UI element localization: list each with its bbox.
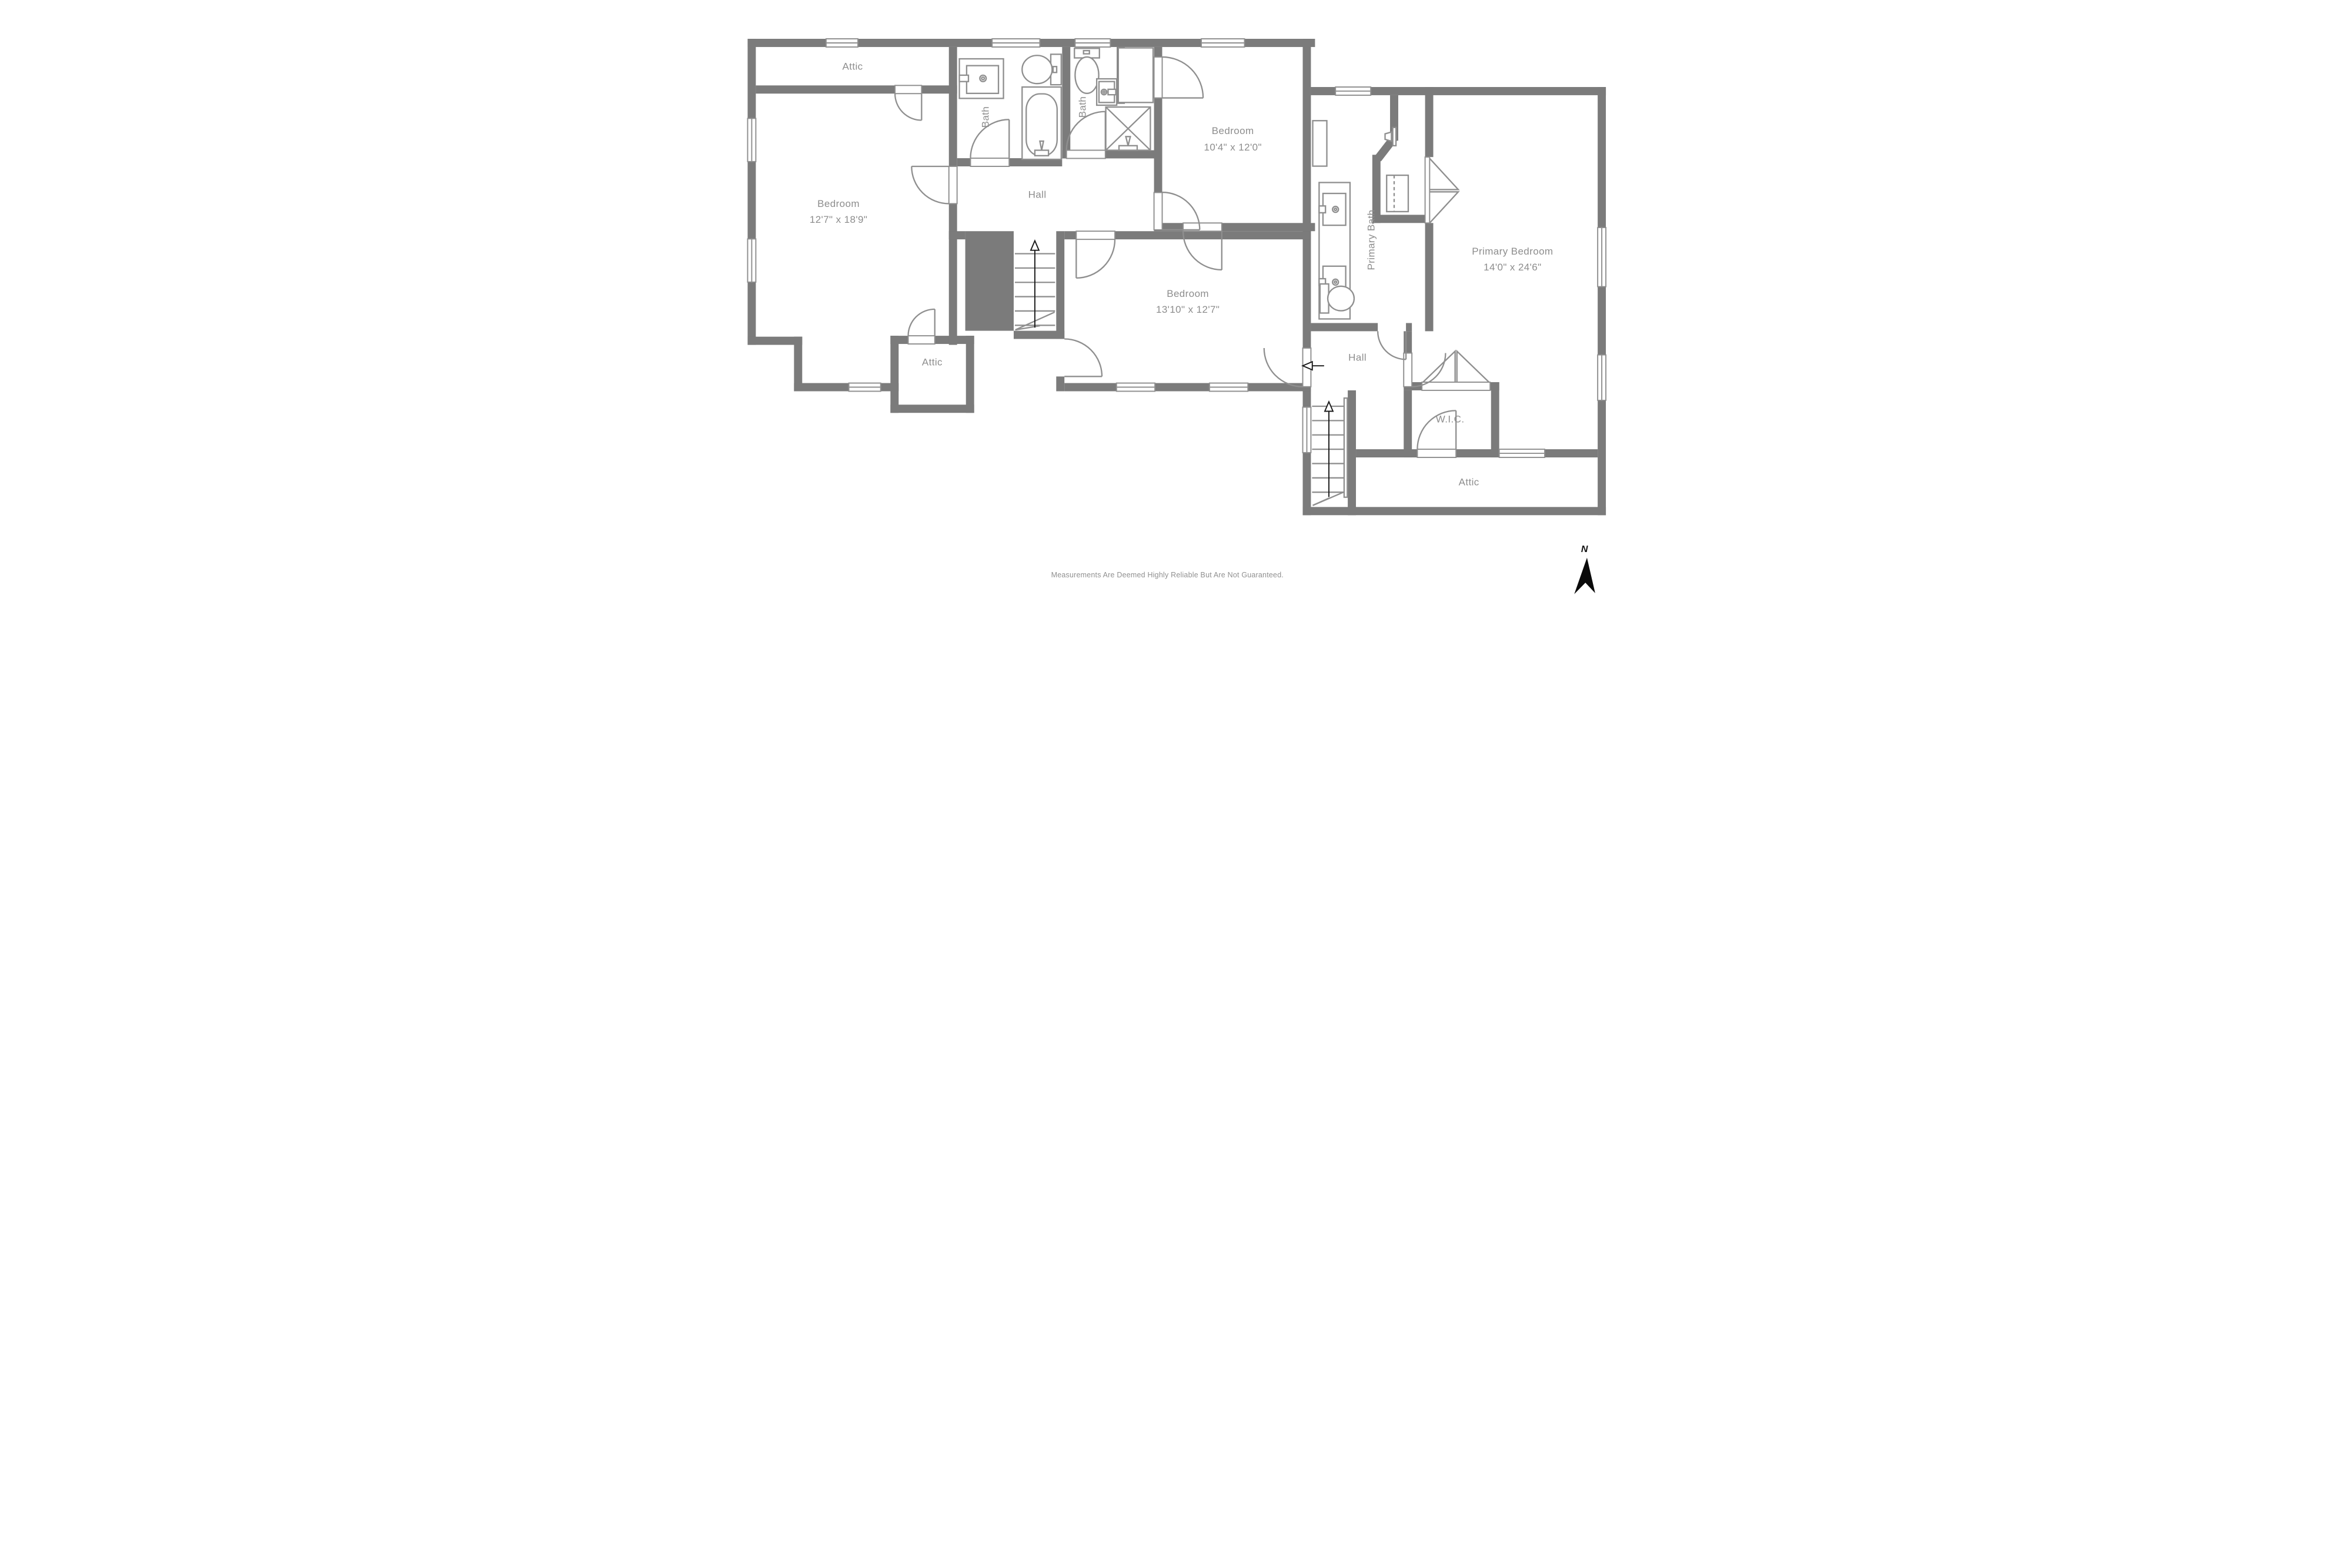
room-label-bath-2: Bath [1075, 96, 1091, 118]
toilet-icon [1319, 284, 1354, 313]
niche-outline [1312, 121, 1327, 166]
room-label-hall-center: Hall [1028, 186, 1047, 202]
sink-icon [959, 59, 1003, 98]
walls [747, 39, 1606, 515]
bathtub-icon [1022, 87, 1061, 159]
stairs-right [1312, 398, 1347, 506]
shower-icon [1105, 107, 1150, 150]
room-label-bedroom-top-right: Bedroom10'4" x 12'0" [1204, 123, 1261, 155]
room-label-bath-1: Bath [977, 106, 993, 128]
room-label-primary-bath: Primary Bath [1363, 210, 1379, 270]
room-label-primary-bedroom: Primary Bedroom14'0" x 24'6" [1472, 243, 1553, 275]
north-arrow-icon [1574, 558, 1595, 594]
room-label-bedroom-left: Bedroom12'7" x 18'9" [810, 196, 867, 228]
toilet-icon [1022, 54, 1061, 85]
room-label-bedroom-center: Bedroom13'10" x 12'7" [1156, 286, 1220, 317]
toilet-icon [1074, 48, 1100, 93]
floor-plan-page: Attic Bath Bath Bedroom10'4" x 12'0" Hal… [721, 0, 1631, 607]
north-label: N [1581, 544, 1588, 555]
sink-icon [1097, 79, 1117, 105]
closet-outline [1118, 48, 1152, 102]
closet-rod-icon [1387, 175, 1408, 212]
room-label-attic-middle: Attic [922, 354, 943, 370]
disclaimer-text: Measurements Are Deemed Highly Reliable … [1051, 571, 1284, 579]
room-label-hall-right: Hall [1348, 350, 1367, 366]
room-label-attic-bottom-right: Attic [1459, 474, 1479, 490]
room-label-wic: W.I.C. [1436, 411, 1465, 427]
room-label-attic-top-left: Attic [843, 58, 863, 74]
